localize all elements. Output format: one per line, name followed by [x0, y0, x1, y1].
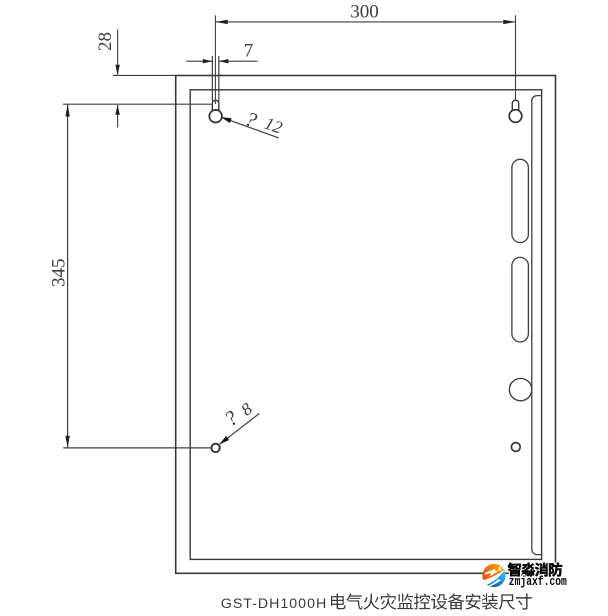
svg-text:28: 28 [95, 32, 116, 51]
svg-text:300: 300 [350, 2, 379, 23]
svg-text:zmjaxf.com: zmjaxf.com [509, 574, 567, 589]
svg-text:GST-DH1000H: GST-DH1000H [221, 596, 327, 612]
svg-text:345: 345 [48, 259, 69, 288]
svg-text:7: 7 [244, 41, 254, 62]
